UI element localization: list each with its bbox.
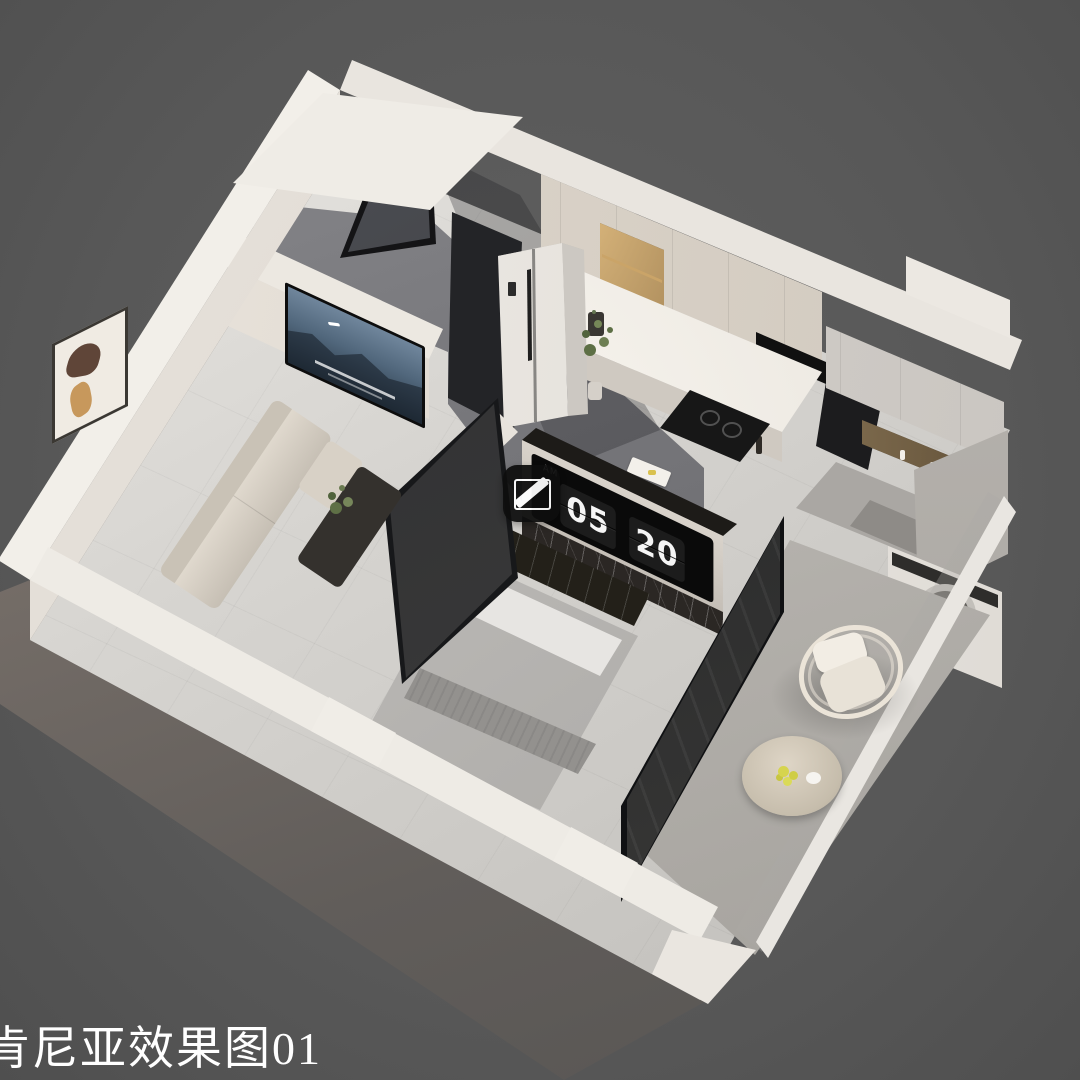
balcony-side-table	[742, 736, 842, 816]
cup	[806, 772, 821, 784]
painting-brushstroke-tan	[68, 378, 94, 422]
plant-pot	[588, 382, 602, 400]
food-item	[648, 470, 656, 475]
sofa-seam	[233, 495, 275, 524]
plant	[584, 344, 596, 356]
coffee-maker	[588, 312, 604, 336]
apartment-3d-render: AM 05 20	[0, 0, 1080, 1080]
burner-ring	[700, 410, 720, 426]
table-plant	[330, 502, 342, 514]
tv-plane-icon	[328, 322, 340, 327]
painting-brushstroke-dark	[63, 341, 105, 380]
toiletry-bottle	[900, 450, 905, 460]
fruit-plate	[778, 766, 789, 777]
fridge-display	[508, 282, 516, 296]
burner-ring	[722, 422, 742, 438]
caption-text: 肯尼亚效果图01	[0, 1012, 322, 1078]
watermark-logo	[503, 465, 560, 522]
